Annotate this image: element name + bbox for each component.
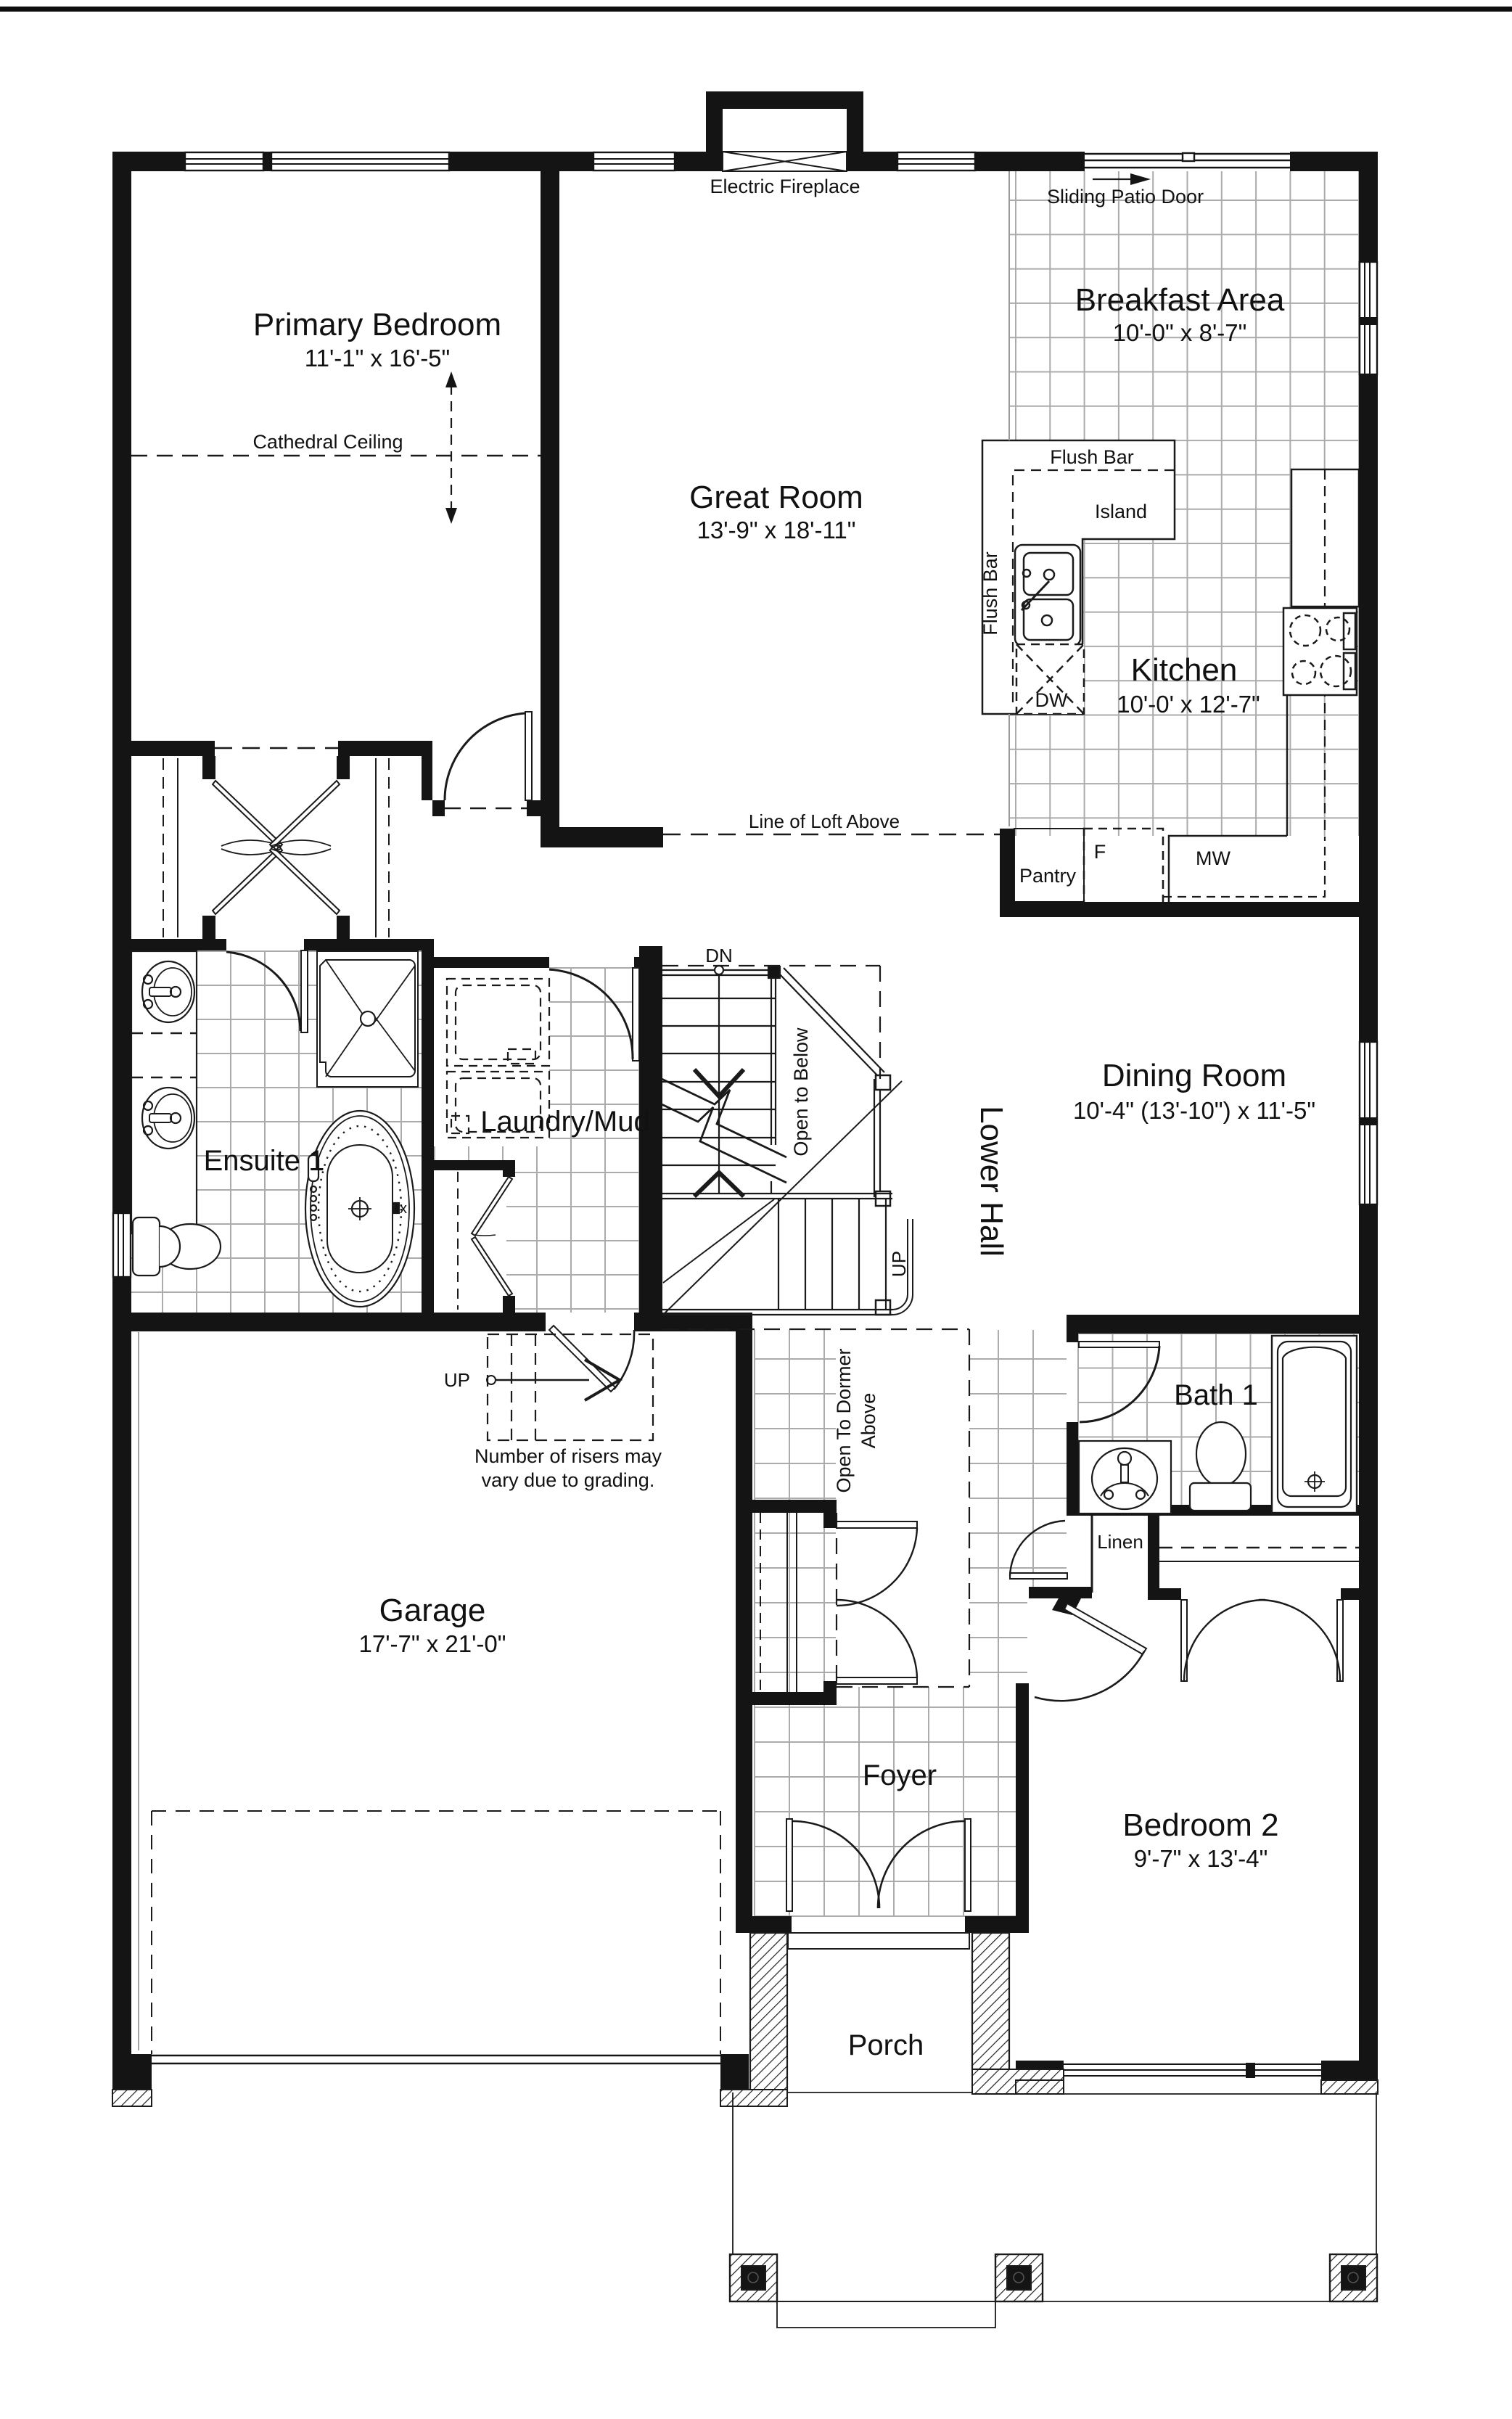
svg-text:Island: Island: [1095, 501, 1147, 522]
svg-text:Open to Below: Open to Below: [790, 1027, 812, 1157]
svg-text:Great Room: Great Room: [689, 480, 863, 515]
svg-text:DN: DN: [705, 945, 733, 966]
svg-text:Garage: Garage: [379, 1593, 486, 1628]
svg-text:11'-1" x 16'-5": 11'-1" x 16'-5": [305, 345, 451, 371]
svg-text:10'-4" (13'-10") x 11'-5": 10'-4" (13'-10") x 11'-5": [1073, 1097, 1315, 1124]
svg-text:10'-0" x 8'-7": 10'-0" x 8'-7": [1113, 319, 1247, 346]
svg-text:Laundry/Mud: Laundry/Mud: [480, 1106, 649, 1138]
svg-text:17'-7" x 21'-0": 17'-7" x 21'-0": [359, 1630, 506, 1657]
svg-text:Breakfast Area: Breakfast Area: [1075, 282, 1285, 318]
svg-text:10'-0' x 12'-7": 10'-0' x 12'-7": [1117, 691, 1260, 718]
svg-text:Flush Bar: Flush Bar: [979, 551, 1001, 636]
svg-text:Above: Above: [858, 1393, 879, 1449]
svg-text:Foyer: Foyer: [863, 1759, 937, 1791]
svg-text:Bath 1: Bath 1: [1174, 1379, 1258, 1411]
svg-text:Ensuite 1: Ensuite 1: [204, 1145, 325, 1177]
svg-text:Sliding Patio Door: Sliding Patio Door: [1047, 186, 1204, 208]
svg-text:Cathedral Ceiling: Cathedral Ceiling: [252, 431, 403, 453]
svg-text:Flush Bar: Flush Bar: [1050, 446, 1134, 468]
svg-text:13'-9" x 18'-11": 13'-9" x 18'-11": [697, 517, 856, 543]
svg-text:UP: UP: [888, 1251, 910, 1277]
svg-text:vary due to grading.: vary due to grading.: [482, 1469, 655, 1491]
svg-text:Primary Bedroom: Primary Bedroom: [253, 307, 501, 342]
svg-text:x: x: [400, 1201, 407, 1217]
svg-text:MW: MW: [1196, 847, 1230, 869]
svg-text:Kitchen: Kitchen: [1131, 652, 1238, 688]
svg-text:Bedroom 2: Bedroom 2: [1122, 1807, 1278, 1843]
svg-text:Number of risers may: Number of risers may: [474, 1445, 662, 1467]
svg-text:F: F: [1094, 841, 1106, 863]
svg-text:Dining Room: Dining Room: [1102, 1058, 1286, 1093]
svg-text:UP: UP: [444, 1369, 470, 1391]
svg-text:Pantry: Pantry: [1019, 865, 1077, 887]
svg-text:Line of Loft Above: Line of Loft Above: [749, 810, 900, 832]
svg-text:Porch: Porch: [848, 2029, 924, 2061]
svg-text:DW: DW: [1035, 689, 1068, 711]
svg-text:Open To Dormer: Open To Dormer: [833, 1348, 855, 1492]
svg-text:9'-7" x 13'-4": 9'-7" x 13'-4": [1134, 1845, 1268, 1872]
svg-text:Electric Fireplace: Electric Fireplace: [710, 176, 860, 197]
svg-text:Linen: Linen: [1097, 1531, 1143, 1553]
svg-text:Lower Hall: Lower Hall: [974, 1106, 1009, 1257]
